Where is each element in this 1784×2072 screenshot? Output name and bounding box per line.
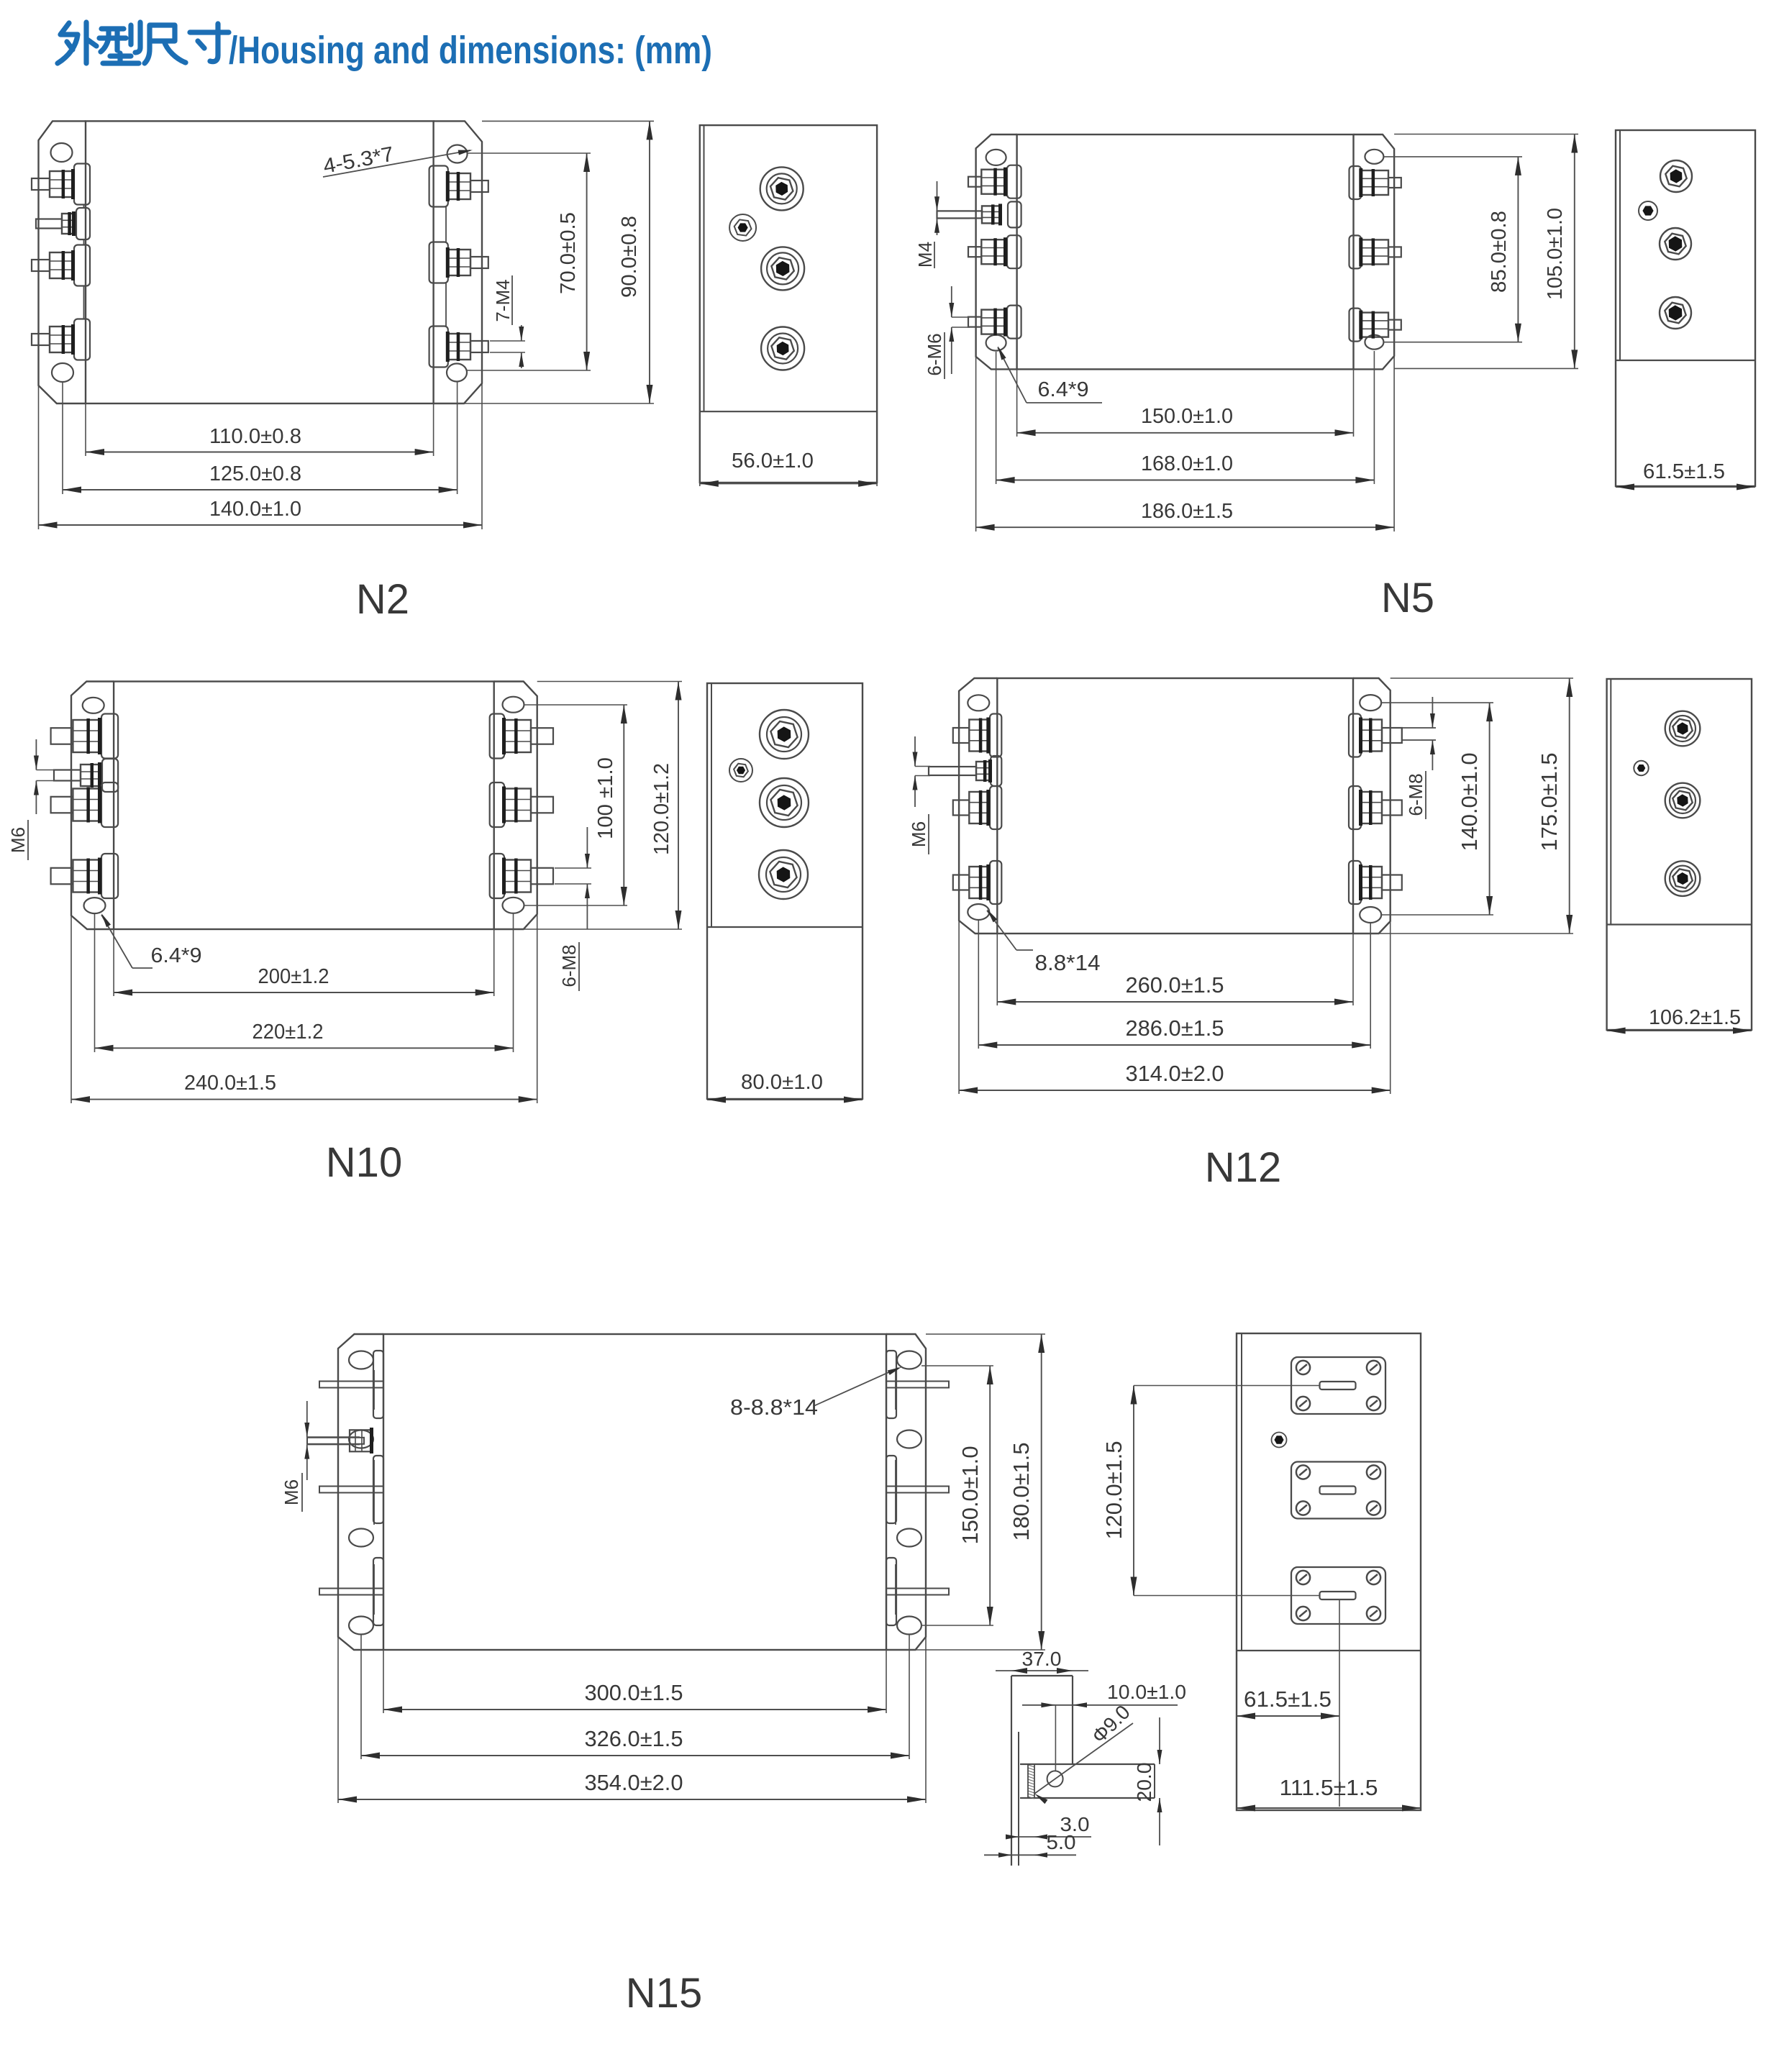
svg-text:5.0: 5.0 [1047, 1831, 1076, 1853]
svg-text:6-M8: 6-M8 [558, 944, 580, 987]
svg-text:354.0±2.0: 354.0±2.0 [585, 1770, 683, 1795]
svg-text:20.0: 20.0 [1133, 1763, 1155, 1802]
svg-text:/Housing and dimensions: (mm): /Housing and dimensions: (mm) [229, 29, 712, 72]
svg-text:140.0±1.0: 140.0±1.0 [209, 498, 301, 521]
svg-text:N5: N5 [1381, 575, 1434, 621]
svg-text:120.0±1.5: 120.0±1.5 [1101, 1441, 1127, 1540]
svg-text:105.0±1.0: 105.0±1.0 [1544, 208, 1567, 300]
svg-text:6-M6: 6-M6 [924, 333, 945, 375]
svg-text:168.0±1.0: 168.0±1.0 [1141, 452, 1233, 475]
svg-text:M6: M6 [7, 827, 29, 853]
svg-text:6.4*9: 6.4*9 [151, 944, 202, 967]
svg-text:61.5±1.5: 61.5±1.5 [1643, 460, 1725, 483]
svg-text:106.2±1.5: 106.2±1.5 [1649, 1006, 1741, 1029]
svg-text:37.0: 37.0 [1022, 1648, 1062, 1670]
svg-text:7-M4: 7-M4 [492, 279, 514, 321]
svg-text:300.0±1.5: 300.0±1.5 [585, 1680, 683, 1705]
svg-text:6.4*9: 6.4*9 [1038, 378, 1089, 401]
svg-text:M4: M4 [914, 242, 936, 268]
svg-text:240.0±1.5: 240.0±1.5 [184, 1072, 276, 1095]
svg-text:10.0±1.0: 10.0±1.0 [1107, 1681, 1186, 1703]
svg-text:N12: N12 [1205, 1144, 1281, 1191]
svg-text:N15: N15 [626, 1970, 702, 2017]
svg-text:186.0±1.5: 186.0±1.5 [1141, 500, 1233, 523]
svg-text:61.5±1.5: 61.5±1.5 [1244, 1687, 1332, 1712]
svg-text:M6: M6 [281, 1479, 302, 1505]
svg-text:150.0±1.0: 150.0±1.0 [1141, 405, 1233, 428]
svg-text:220±1.2: 220±1.2 [252, 1021, 324, 1044]
svg-text:N2: N2 [356, 576, 409, 623]
svg-text:100 ±1.0: 100 ±1.0 [594, 757, 617, 839]
svg-text:140.0±1.0: 140.0±1.0 [1457, 753, 1482, 852]
svg-text:260.0±1.5: 260.0±1.5 [1126, 972, 1224, 998]
svg-text:286.0±1.5: 286.0±1.5 [1126, 1016, 1224, 1041]
svg-text:8-8.8*14: 8-8.8*14 [730, 1395, 818, 1420]
svg-text:326.0±1.5: 326.0±1.5 [585, 1726, 683, 1751]
svg-text:175.0±1.5: 175.0±1.5 [1537, 753, 1562, 852]
svg-text:N10: N10 [326, 1139, 402, 1186]
svg-text:85.0±0.8: 85.0±0.8 [1488, 211, 1511, 293]
svg-text:120.0±1.2: 120.0±1.2 [650, 763, 673, 855]
svg-text:110.0±0.8: 110.0±0.8 [209, 425, 301, 448]
svg-text:M6: M6 [908, 821, 929, 847]
svg-text:180.0±1.5: 180.0±1.5 [1009, 1443, 1034, 1541]
svg-text:6-M8: 6-M8 [1405, 773, 1426, 816]
svg-text:314.0±2.0: 314.0±2.0 [1126, 1061, 1224, 1086]
svg-text:150.0±1.0: 150.0±1.0 [957, 1446, 983, 1545]
svg-text:8.8*14: 8.8*14 [1035, 950, 1101, 975]
svg-text:80.0±1.0: 80.0±1.0 [741, 1071, 823, 1094]
svg-text:70.0±0.5: 70.0±0.5 [557, 212, 580, 294]
svg-text:111.5±1.5: 111.5±1.5 [1280, 1775, 1378, 1800]
svg-text:90.0±0.8: 90.0±0.8 [618, 216, 641, 298]
svg-text:200±1.2: 200±1.2 [258, 965, 329, 988]
svg-text:56.0±1.0: 56.0±1.0 [732, 449, 814, 473]
svg-text:125.0±0.8: 125.0±0.8 [209, 462, 301, 485]
